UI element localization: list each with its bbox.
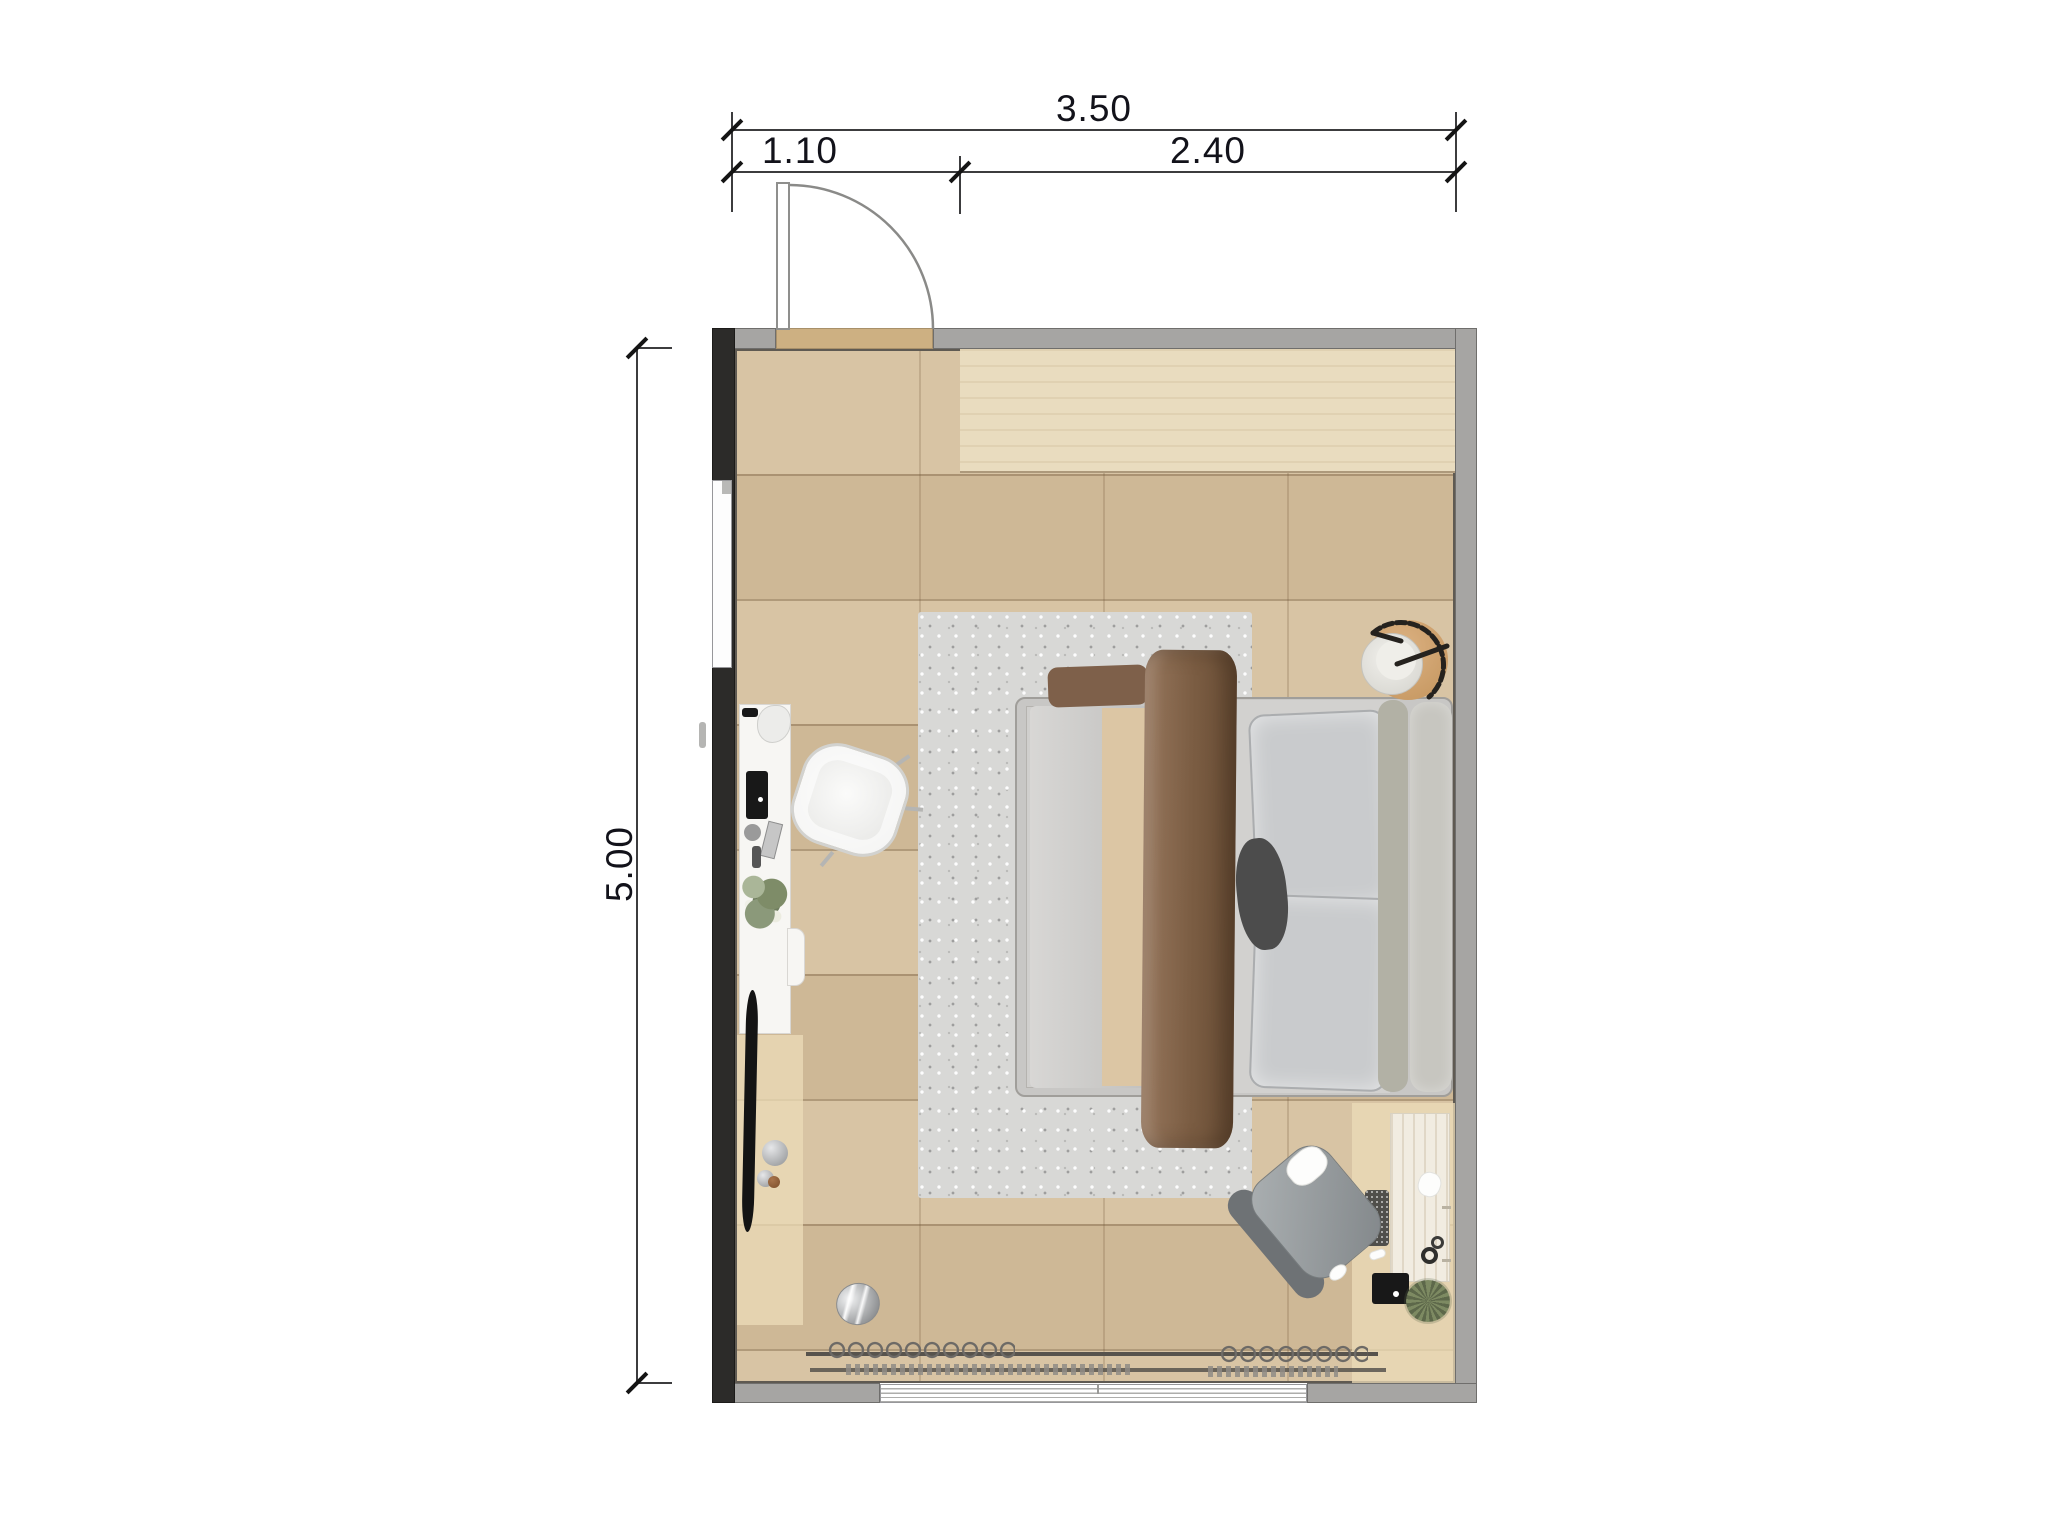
laptop-right[interactable] bbox=[1372, 1273, 1409, 1304]
desk-remote bbox=[742, 708, 758, 717]
vanity-desk-right[interactable] bbox=[1390, 1113, 1450, 1282]
headboard-bolster-olive bbox=[1378, 700, 1408, 1092]
deco-ball-brown bbox=[768, 1176, 780, 1188]
dim-label-remaining-width: 2.40 bbox=[1128, 130, 1288, 172]
floor-plant-right[interactable] bbox=[1406, 1280, 1450, 1322]
vanity-ring-large bbox=[1421, 1247, 1438, 1264]
window-handle-outside bbox=[699, 722, 706, 748]
desk-accessories bbox=[742, 822, 788, 870]
extension-line-door bbox=[959, 156, 961, 214]
wall-bottom-left[interactable] bbox=[712, 1383, 880, 1403]
accessory-bottle bbox=[752, 846, 761, 868]
wall-bottom-right[interactable] bbox=[1307, 1383, 1477, 1403]
bedside-lamp-top bbox=[1376, 640, 1416, 680]
dim-label-total-width: 3.50 bbox=[1014, 88, 1174, 130]
accessory-speaker bbox=[760, 821, 783, 860]
door-swing-arc bbox=[790, 185, 933, 329]
laptop-logo-dot bbox=[758, 797, 763, 802]
headboard-bolster-gray bbox=[1410, 702, 1452, 1092]
floor-light-zone bbox=[960, 349, 1455, 473]
hangers-group-left bbox=[828, 1336, 1015, 1364]
dim-label-door-offset: 1.10 bbox=[720, 130, 880, 172]
window-latch-notch bbox=[722, 481, 731, 494]
duvet-brown bbox=[1141, 650, 1237, 1149]
hanging-clothes-right bbox=[1208, 1366, 1338, 1377]
window-left-wall[interactable] bbox=[712, 480, 732, 668]
wall-right[interactable] bbox=[1455, 328, 1477, 1403]
floor-plan-canvas: 3.50 1.10 2.40 5.00 bbox=[0, 0, 2048, 1536]
door-leaf[interactable] bbox=[776, 182, 790, 330]
desk-left-drawer[interactable] bbox=[787, 928, 805, 986]
window-mullion bbox=[1097, 1384, 1099, 1394]
laptop-left[interactable] bbox=[746, 771, 768, 819]
window-bottom-wall[interactable] bbox=[880, 1384, 1307, 1403]
door-threshold bbox=[776, 328, 933, 349]
vanity-handle bbox=[1442, 1259, 1451, 1262]
vanity-handle bbox=[1442, 1206, 1451, 1209]
accessory-cup bbox=[744, 824, 761, 841]
duvet-fold-flap bbox=[1047, 664, 1148, 707]
laptop-dot bbox=[1393, 1291, 1399, 1297]
desk-plant[interactable] bbox=[738, 866, 790, 936]
wall-top-right[interactable] bbox=[933, 328, 1477, 349]
stub-top bbox=[636, 347, 672, 349]
deco-ball-large[interactable] bbox=[762, 1140, 788, 1166]
hanging-clothes-left bbox=[846, 1364, 1132, 1375]
hangers-group-right bbox=[1220, 1340, 1368, 1368]
dim-label-room-height: 5.00 bbox=[599, 784, 641, 944]
stub-bottom bbox=[636, 1382, 672, 1384]
